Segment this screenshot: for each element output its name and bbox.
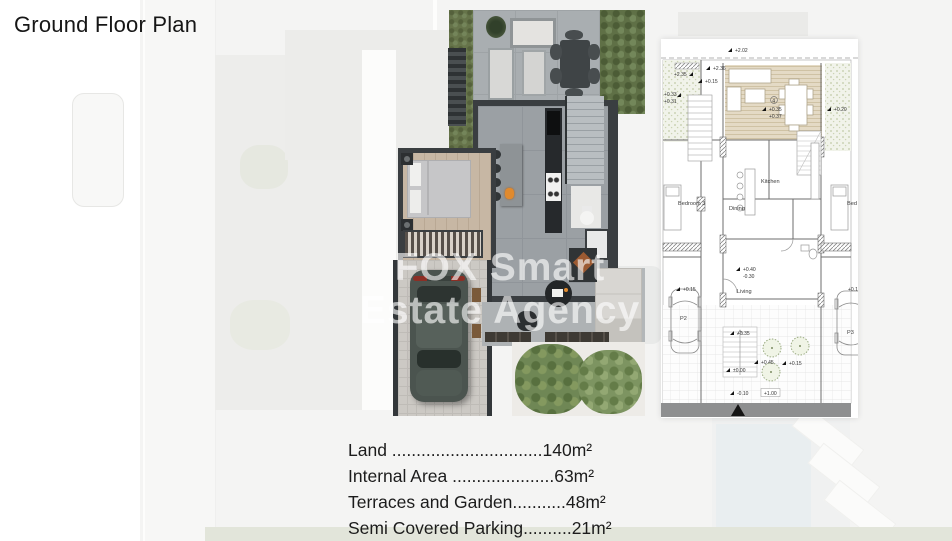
area-line-parking: Semi Covered Parking..........21m² xyxy=(348,515,612,541)
car-hood xyxy=(416,370,462,396)
ground-floor-render xyxy=(393,8,645,416)
garden-step xyxy=(485,332,531,342)
car-roof xyxy=(416,304,462,348)
car-rear-window xyxy=(417,286,461,302)
sun-lounger xyxy=(488,48,514,100)
area-line-land: Land ...............................140m… xyxy=(348,437,612,463)
elevation-label: +0.35 xyxy=(737,331,750,337)
elevation-label: -0.30 xyxy=(743,274,755,280)
room-label-bedroom3: Bedroom 3 xyxy=(678,201,705,207)
duvet-fold xyxy=(427,161,429,215)
lounge-chair xyxy=(517,311,537,331)
elevation-label: ±0.00 xyxy=(733,368,746,374)
background-pool-water xyxy=(716,424,811,530)
elevation-label: +2.35 xyxy=(674,72,687,78)
staircase xyxy=(565,96,604,184)
outdoor-chair xyxy=(588,44,600,60)
technical-floor-plan: +2.02 +2.36 +2.35 +0.15 +0.33 +0.31 4 +0… xyxy=(661,39,858,418)
elevation-label: +0.15 xyxy=(705,79,718,85)
elevation-label: +0.33 xyxy=(664,92,677,98)
elevation-label: +0.35 xyxy=(769,107,782,113)
room-label-dining: Dining xyxy=(729,206,745,212)
elevation-label: +0.15 xyxy=(789,361,802,367)
garden-step xyxy=(545,332,609,342)
outdoor-dining-table xyxy=(560,40,590,88)
elevation-label: +0.15 xyxy=(848,287,858,293)
elevation-label: +1.00 xyxy=(764,391,777,397)
cooktop xyxy=(546,173,561,201)
background-wall xyxy=(362,50,396,410)
elevation-label: +0.40 xyxy=(743,267,756,273)
plan-base-bar xyxy=(661,403,851,417)
car-taillights xyxy=(413,276,465,281)
elevation-label: +0.31 xyxy=(664,99,677,105)
area-line-internal: Internal Area .....................63m² xyxy=(348,463,612,489)
elevation-label: +0.15 xyxy=(683,287,696,293)
terrace-plant xyxy=(486,16,506,38)
outdoor-chair xyxy=(565,30,583,40)
elevation-label: -0.10 xyxy=(737,391,749,397)
stairs-left xyxy=(688,95,712,161)
outdoor-chair xyxy=(550,44,562,60)
lamp xyxy=(404,222,410,228)
room-label-bed: Bed xyxy=(847,201,857,207)
tray xyxy=(552,289,563,297)
elevation-label: +0.45 xyxy=(761,360,774,366)
floor-plan-page: +2.02 +2.36 +2.35 +0.15 +0.33 +0.31 4 +0… xyxy=(0,0,952,541)
background-road xyxy=(143,0,216,541)
decor-dot xyxy=(564,288,568,292)
hedge-right xyxy=(600,10,645,114)
elevation-label: +2.36 xyxy=(713,66,726,72)
car-windshield xyxy=(417,350,461,368)
pillow xyxy=(410,163,421,186)
garden xyxy=(512,342,645,416)
room-label-living: Living xyxy=(737,289,752,295)
wardrobe xyxy=(403,230,483,258)
background-vegetation xyxy=(230,300,290,350)
area-summary: Land ...............................140m… xyxy=(348,437,612,541)
background-vegetation xyxy=(240,145,288,189)
room-label-kitchen: Kitchen xyxy=(761,179,780,185)
planter-box xyxy=(472,288,481,302)
planter-box xyxy=(472,324,481,338)
elevation-label: +0.37 xyxy=(769,114,782,120)
louver-screen xyxy=(448,48,466,126)
pillow xyxy=(410,190,421,213)
toilet xyxy=(580,211,594,225)
background-parked-car xyxy=(72,93,124,207)
elevation-label: +2.02 xyxy=(735,48,748,54)
garden-tree xyxy=(515,344,587,414)
planter-hatch xyxy=(675,63,699,69)
parked-car xyxy=(410,270,468,402)
background-building xyxy=(678,12,808,36)
outdoor-sofa xyxy=(510,18,556,48)
coffee-table xyxy=(545,280,572,307)
garden-tree xyxy=(578,350,642,414)
outdoor-chair xyxy=(550,68,562,84)
area-line-terraces: Terraces and Garden...........48m² xyxy=(348,489,612,515)
unit-number: 4 xyxy=(772,98,775,104)
sun-lounger xyxy=(522,50,546,96)
nightstand xyxy=(401,153,413,165)
elevation-label: +0.20 xyxy=(834,107,847,113)
fridge xyxy=(547,111,560,135)
flower-vase xyxy=(505,188,514,199)
lamp xyxy=(404,156,410,162)
parking-label-p3: P3 xyxy=(847,330,854,336)
outdoor-chair xyxy=(588,68,600,84)
parking-label-p2: P2 xyxy=(680,316,687,322)
page-title: Ground Floor Plan xyxy=(14,12,197,38)
